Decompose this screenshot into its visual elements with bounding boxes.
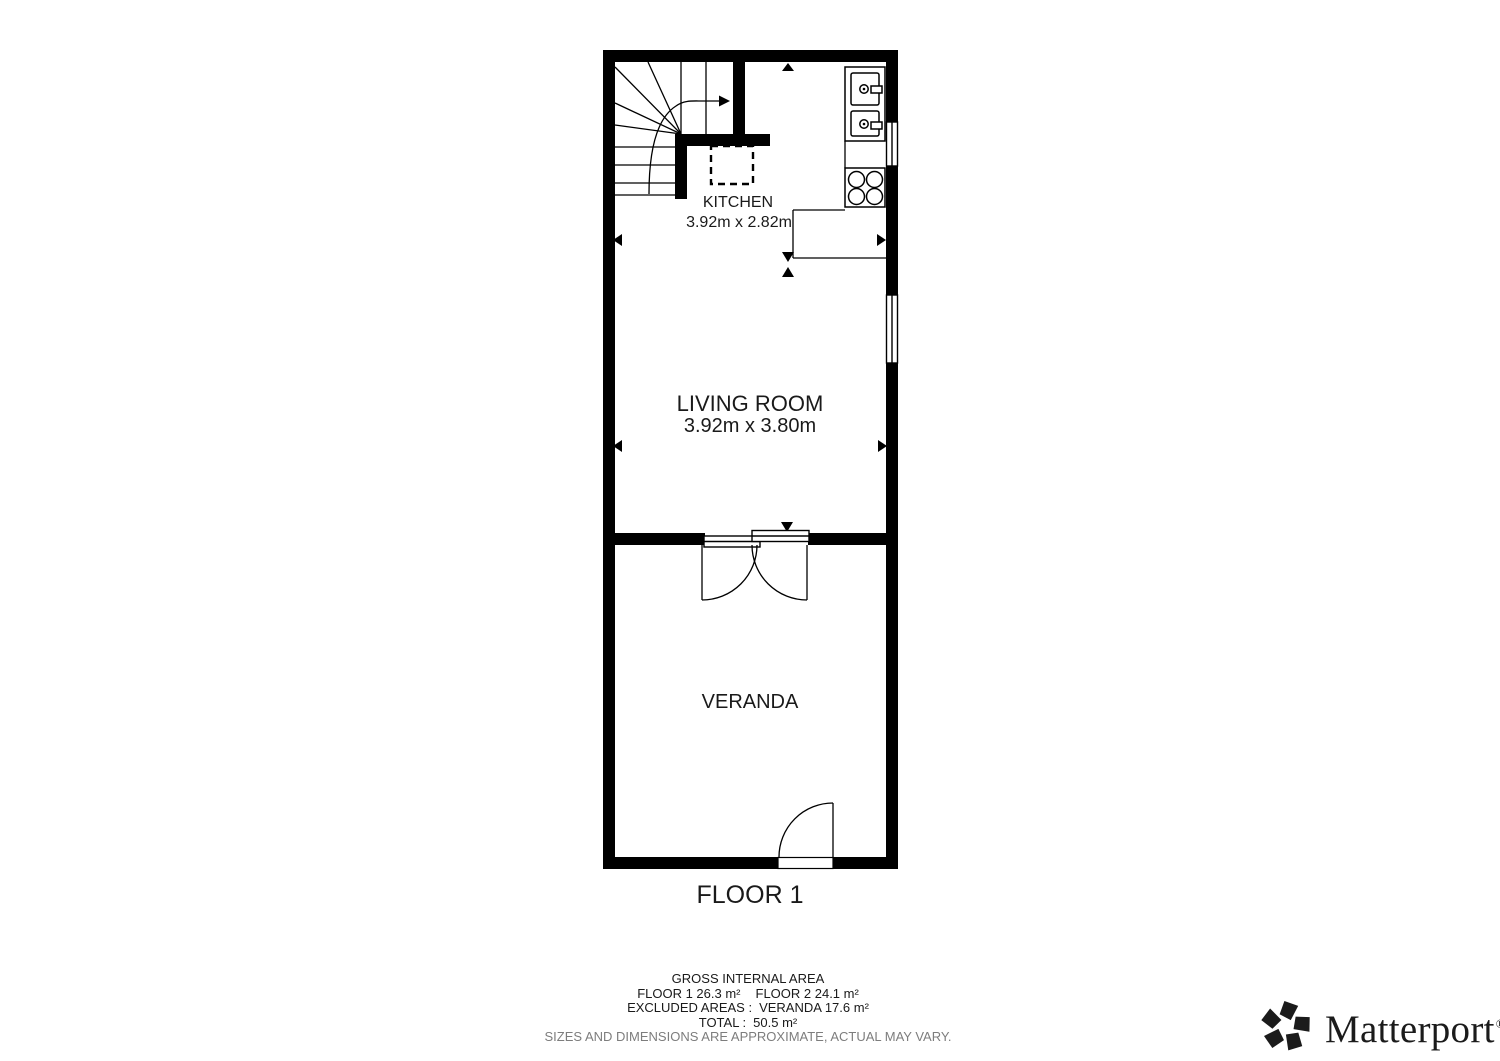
excluded-label: EXCLUDED AREAS : [627, 1000, 752, 1015]
matterport-wordmark: Matterport® [1325, 1004, 1500, 1050]
matterport-logo: Matterport® [1258, 1000, 1500, 1053]
kitchen-room-label: KITCHEN [703, 194, 773, 212]
living-room-label: LIVING ROOM [677, 391, 824, 416]
kitchen-sink-unit [845, 67, 885, 141]
summary-title: GROSS INTERNAL AREA [545, 972, 952, 987]
matterport-pinwheel-icon [1258, 1000, 1314, 1053]
marker-right-icon [877, 234, 886, 246]
door-swing-arc [702, 545, 757, 600]
marker-up-icon [782, 267, 794, 277]
faucet-icon [871, 86, 882, 93]
wall-bottom [603, 857, 898, 869]
door-swing-arc [779, 803, 833, 857]
burner-icon [867, 172, 883, 188]
door-swing-arc [752, 545, 807, 600]
veranda-room-label: VERANDA [702, 691, 799, 714]
living-room-window [887, 295, 898, 363]
marker-right-icon [878, 440, 887, 452]
wall-left [603, 50, 615, 869]
marker-down-icon [782, 252, 794, 262]
entry-door [778, 803, 833, 869]
stair-direction-arrow-icon [719, 96, 730, 107]
summary-total: TOTAL :50.5 m² [545, 1016, 952, 1031]
floor1-area: FLOOR 1 26.3 m² [637, 986, 740, 1001]
burner-icon [867, 189, 883, 205]
wall-stair-vertical [733, 62, 745, 134]
wall-right [886, 50, 898, 869]
marker-up-icon [782, 63, 794, 71]
summary-floor-areas: FLOOR 1 26.3 m²FLOOR 2 24.1 m² [545, 987, 952, 1002]
living-room-dimensions: 3.92m x 3.80m [684, 415, 816, 438]
double-door [702, 545, 807, 600]
floor-title: FLOOR 1 [697, 881, 804, 910]
summary-disclaimer: SIZES AND DIMENSIONS ARE APPROXIMATE, AC… [545, 1030, 952, 1045]
excluded-value: VERANDA 17.6 m² [759, 1001, 869, 1016]
door-threshold [778, 858, 833, 869]
burner-icon [849, 172, 865, 188]
burner-icon [849, 189, 865, 205]
kitchen-window [887, 122, 898, 166]
faucet-icon [871, 122, 882, 129]
brand-name-text: Matterport [1325, 1008, 1495, 1051]
floor2-area: FLOOR 2 24.1 m² [756, 987, 859, 1002]
area-summary: GROSS INTERNAL AREA FLOOR 1 26.3 m²FLOOR… [545, 972, 952, 1045]
kitchen-room-dimensions: 3.92m x 2.82m [686, 214, 792, 232]
wall-divider-left [615, 533, 705, 545]
wall-top [603, 50, 898, 62]
summary-excluded: EXCLUDED AREAS :VERANDA 17.6 m² [545, 1001, 952, 1016]
total-value: 50.5 m² [753, 1016, 797, 1031]
cooktop [845, 168, 885, 207]
dashed-fixture-outline [711, 146, 753, 184]
wall-divider-right [808, 533, 886, 545]
total-label: TOTAL : [699, 1015, 746, 1030]
registered-mark: ® [1496, 1016, 1500, 1031]
sliding-door [704, 531, 809, 548]
